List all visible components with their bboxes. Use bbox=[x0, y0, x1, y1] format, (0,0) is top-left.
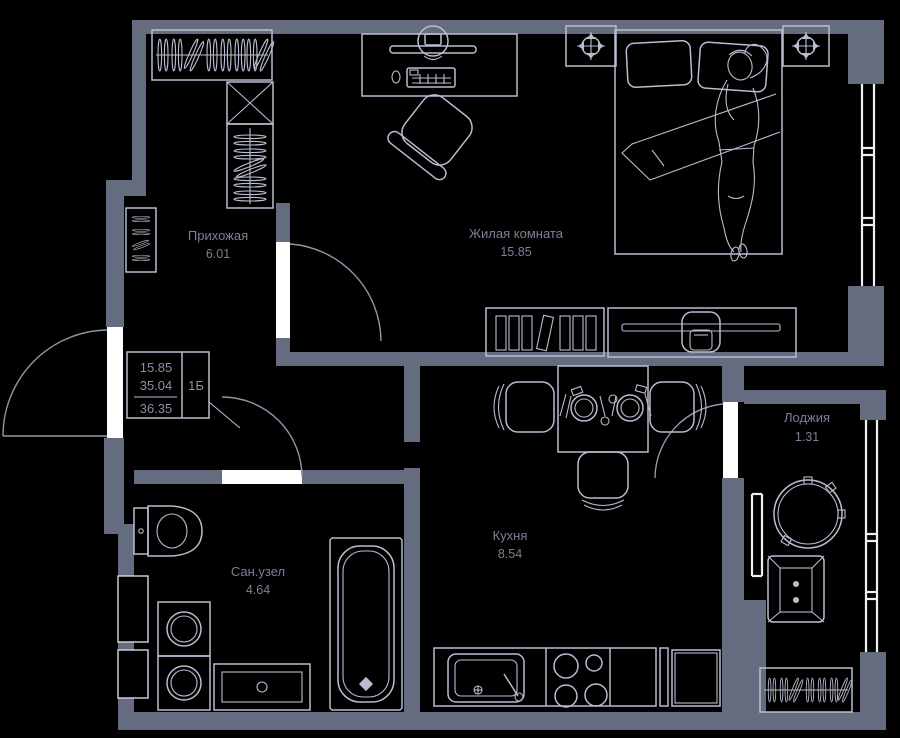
bed bbox=[615, 30, 782, 262]
desk bbox=[362, 26, 517, 96]
room-area-living: 15.85 bbox=[500, 245, 531, 259]
floor-plan-svg: 15.85 35.04 36.35 1Б Прихожая 6.01 Жилая… bbox=[0, 0, 900, 738]
bathroom-door bbox=[222, 397, 302, 484]
vanity-cabinet bbox=[214, 664, 310, 710]
duct-boxes bbox=[118, 576, 148, 698]
floor-plan: 15.85 35.04 36.35 1Б Прихожая 6.01 Жилая… bbox=[0, 0, 900, 738]
room-area-hallway: 6.01 bbox=[206, 247, 230, 261]
legend-area-without-loggia: 35.04 bbox=[140, 378, 173, 393]
kitchen-loggia-partition-window bbox=[752, 494, 762, 576]
desk-keyboard bbox=[407, 68, 455, 87]
tv-stand bbox=[608, 308, 796, 357]
dryer bbox=[158, 656, 210, 710]
dining-table bbox=[558, 366, 651, 452]
hallway-living-door bbox=[276, 242, 381, 341]
loggia-armchair bbox=[768, 556, 824, 622]
legend-apartment-type: 1Б bbox=[188, 378, 204, 393]
drying-rack bbox=[760, 668, 853, 712]
bathtub bbox=[330, 538, 402, 710]
electrical-panel bbox=[126, 208, 156, 272]
fridge bbox=[672, 650, 720, 706]
place-setting-left bbox=[560, 386, 609, 425]
bookshelf bbox=[486, 308, 604, 356]
kitchen-counter bbox=[434, 648, 720, 707]
washing-machine bbox=[158, 602, 210, 656]
loggia-window bbox=[866, 420, 877, 652]
walls bbox=[104, 20, 886, 730]
desk-chair bbox=[385, 86, 482, 183]
chair-bottom bbox=[578, 452, 628, 510]
place-setting-right bbox=[609, 385, 651, 421]
toilet bbox=[134, 506, 202, 556]
room-label-hallway: Прихожая bbox=[188, 228, 248, 243]
room-area-bathroom: 4.64 bbox=[246, 583, 270, 597]
room-label-bathroom: Сан.узел bbox=[231, 564, 285, 579]
loggia-table bbox=[774, 477, 845, 548]
legend-total-area: 36.35 bbox=[140, 401, 173, 416]
kitchen-sink bbox=[448, 654, 524, 702]
dining-chairs bbox=[494, 382, 706, 510]
room-label-kitchen: Кухня bbox=[493, 528, 528, 543]
legend-living-area: 15.85 bbox=[140, 360, 173, 375]
pillow-right bbox=[697, 42, 768, 93]
room-area-loggia: 1.31 bbox=[795, 430, 819, 444]
chair-left bbox=[494, 382, 554, 432]
wardrobe-top bbox=[152, 30, 275, 80]
entrance-door bbox=[3, 327, 123, 438]
legend-box: 15.85 35.04 36.35 1Б bbox=[127, 352, 240, 428]
pillow-left bbox=[626, 40, 692, 87]
room-label-living: Жилая комната bbox=[469, 226, 564, 241]
desk-mouse bbox=[392, 71, 400, 83]
ventilation-shaft-box bbox=[227, 82, 273, 124]
stove bbox=[554, 654, 607, 707]
kitchen-loggia-door bbox=[655, 402, 738, 478]
room-label-loggia: Лоджия bbox=[784, 410, 830, 425]
wardrobe-side bbox=[227, 124, 273, 208]
room-area-kitchen: 8.54 bbox=[498, 547, 522, 561]
bedroom-window bbox=[862, 84, 874, 286]
